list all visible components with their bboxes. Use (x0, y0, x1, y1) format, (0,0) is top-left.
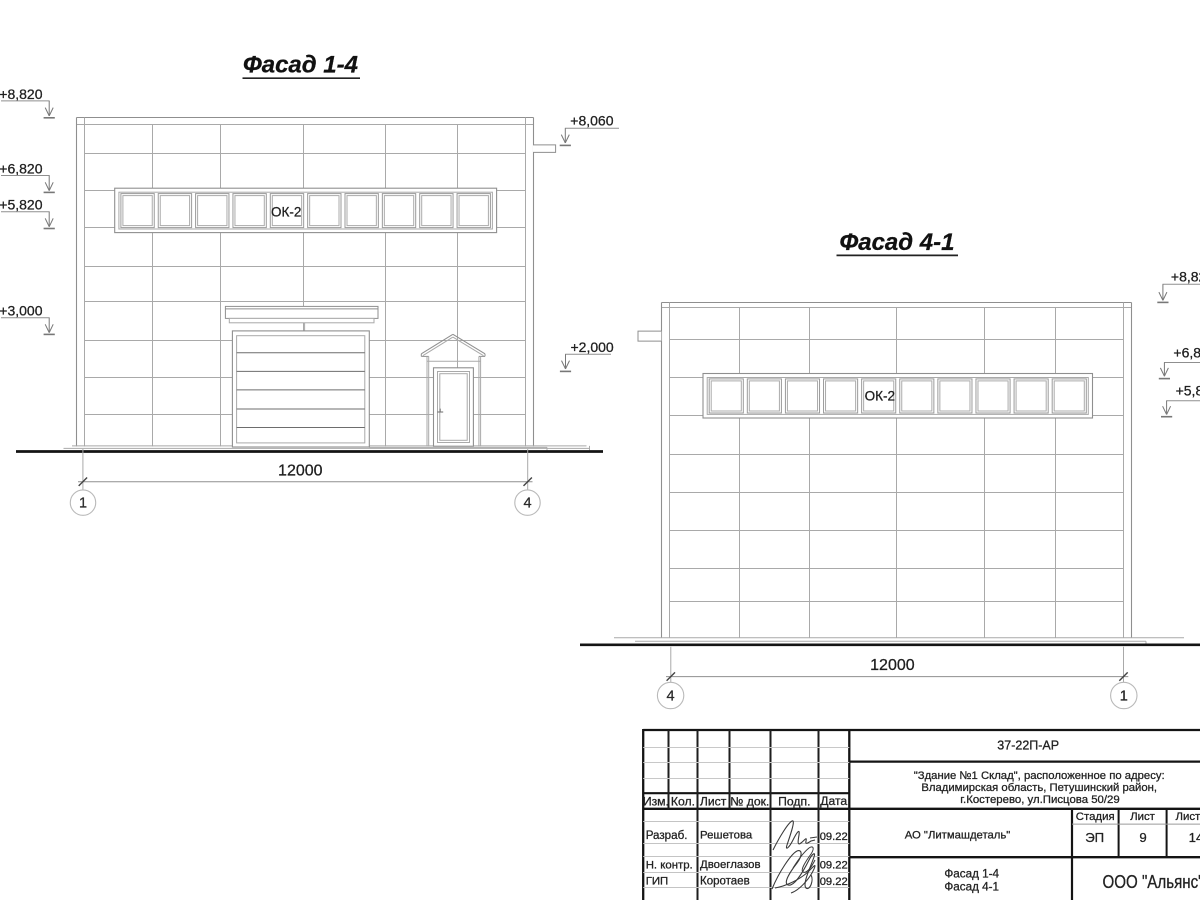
svg-text:Лист: Лист (1130, 811, 1156, 823)
svg-text:Двоеглазов: Двоеглазов (700, 859, 761, 871)
svg-text:Владимирская область, Петушинс: Владимирская область, Петушинский район, (921, 782, 1157, 794)
svg-text:Листов: Листов (1175, 811, 1200, 823)
svg-text:+3,000: +3,000 (0, 303, 43, 319)
svg-text:09.22: 09.22 (820, 831, 848, 843)
svg-text:Коротаев: Коротаев (700, 876, 750, 888)
svg-text:ГИП: ГИП (646, 876, 669, 888)
svg-text:+2,000: +2,000 (571, 339, 614, 355)
svg-text:9: 9 (1139, 830, 1146, 845)
svg-text:09.22: 09.22 (820, 860, 848, 872)
svg-text:ОК-2: ОК-2 (271, 205, 301, 220)
svg-text:Стадия: Стадия (1076, 811, 1115, 823)
svg-text:37-22П-АР: 37-22П-АР (997, 738, 1059, 752)
svg-text:ООО "Альянс": ООО "Альянс" (1103, 872, 1200, 892)
svg-text:Фасад 4-1: Фасад 4-1 (944, 881, 999, 894)
svg-text:Дата: Дата (820, 794, 847, 808)
svg-text:+5,820: +5,820 (1176, 383, 1200, 399)
svg-text:+8,820: +8,820 (0, 86, 43, 102)
svg-text:г.Костерево, ул.Писцова 50/29: г.Костерево, ул.Писцова 50/29 (960, 794, 1119, 806)
svg-text:12000: 12000 (278, 462, 323, 479)
svg-text:4: 4 (667, 689, 675, 705)
svg-text:Фасад 1-4: Фасад 1-4 (944, 868, 999, 881)
svg-text:09.22: 09.22 (820, 876, 848, 888)
svg-text:АО "Литмашдеталь": АО "Литмашдеталь" (905, 830, 1011, 842)
svg-text:Н. контр.: Н. контр. (646, 859, 693, 871)
svg-text:Лист: Лист (700, 795, 727, 809)
svg-text:+6,820: +6,820 (1173, 345, 1200, 361)
svg-text:Изм.: Изм. (643, 795, 669, 809)
svg-text:№ док.: № док. (730, 795, 769, 809)
svg-text:Кол.: Кол. (671, 795, 695, 809)
svg-text:+5,820: +5,820 (0, 197, 43, 213)
svg-text:+8,060: +8,060 (570, 113, 613, 129)
svg-text:+6,820: +6,820 (0, 161, 43, 177)
svg-text:ОК-2: ОК-2 (865, 389, 895, 404)
svg-text:1: 1 (1120, 689, 1128, 705)
svg-text:Подп.: Подп. (778, 795, 810, 809)
svg-text:Фасад 1-4: Фасад 1-4 (243, 52, 358, 79)
svg-text:ЭП: ЭП (1085, 830, 1104, 845)
svg-text:"Здание №1 Склад", расположенн: "Здание №1 Склад", расположенное по адре… (914, 770, 1165, 782)
svg-text:Разраб.: Разраб. (646, 829, 688, 842)
svg-text:Решетова: Решетова (700, 830, 753, 842)
svg-text:12000: 12000 (870, 657, 915, 674)
svg-text:1: 1 (79, 496, 87, 512)
svg-text:Фасад 4-1: Фасад 4-1 (840, 229, 955, 256)
svg-text:14: 14 (1189, 830, 1200, 845)
svg-text:4: 4 (523, 496, 531, 512)
svg-text:+8,820: +8,820 (1171, 268, 1200, 284)
